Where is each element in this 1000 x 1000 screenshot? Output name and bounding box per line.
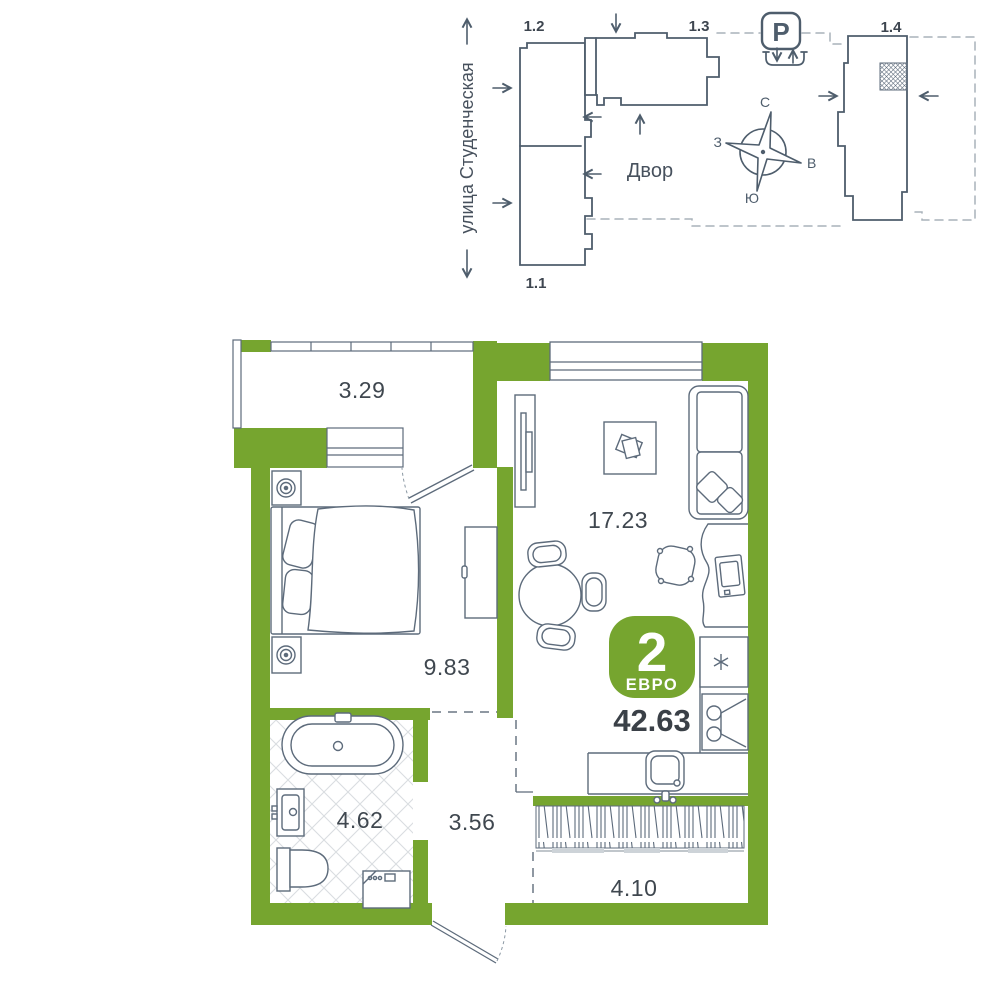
- dining-chair: [536, 623, 577, 651]
- nightstand: [272, 637, 301, 673]
- desk: [701, 524, 748, 627]
- window-sill-unit: [327, 428, 403, 467]
- apartment-type-badge: 2 ЕВРО: [609, 616, 695, 698]
- area-label-bathroom: 4.62: [337, 807, 384, 833]
- building-1-2-1-1-outline: [520, 43, 592, 265]
- balcony-glazing: [536, 806, 744, 848]
- building-label-1-4: 1.4: [881, 19, 903, 36]
- building-label-1-2: 1.2: [524, 18, 545, 35]
- living-window: [550, 342, 702, 380]
- dining-chair: [527, 540, 567, 568]
- loggia-wall: [233, 340, 241, 428]
- wardrobe: [462, 527, 497, 618]
- washing-machine: [363, 871, 410, 908]
- badge-type-label: ЕВРО: [626, 676, 679, 694]
- dining-chair: [582, 573, 606, 611]
- balcony-door: [402, 465, 474, 503]
- room-living-kitchen: [515, 386, 748, 803]
- building-1-3-outline: [585, 33, 719, 105]
- parking-ramp-icon: [763, 52, 807, 65]
- floorplan-page: улица Студенческая: [0, 0, 1000, 1000]
- street: улица Студенческая: [457, 20, 477, 276]
- stove: [702, 694, 748, 750]
- coffee-table: [604, 422, 656, 474]
- duvet: [308, 506, 419, 633]
- sofa: [689, 386, 748, 519]
- area-label-balcony: 4.10: [611, 875, 658, 901]
- area-label-loggia: 3.29: [339, 377, 386, 403]
- street-label: улица Студенческая: [457, 62, 477, 233]
- compass-east: В: [807, 155, 816, 171]
- room-balcony-bottom: [536, 806, 744, 853]
- apartment-location-marker: [880, 63, 907, 90]
- site-plan: улица Студенческая: [457, 13, 975, 292]
- building-label-1-3: 1.3: [689, 18, 710, 35]
- compass-south: Ю: [745, 190, 759, 206]
- pillow: [282, 569, 314, 616]
- compass-icon: С З В Ю: [714, 94, 817, 206]
- nightstand: [272, 471, 301, 505]
- compass-west: З: [714, 134, 722, 150]
- kitchen-sink: [646, 751, 684, 803]
- room-bedroom: [271, 471, 497, 673]
- courtyard-label: Двор: [627, 160, 673, 182]
- total-area-label: 42.63: [613, 703, 691, 738]
- dining-table: [519, 540, 606, 651]
- building-1-4: [838, 36, 907, 220]
- parking-symbol: P: [772, 17, 789, 47]
- badge-room-count: 2: [637, 621, 668, 683]
- entrance-door: [431, 921, 506, 963]
- parking-icon: P: [762, 13, 807, 65]
- fridge: [700, 637, 748, 687]
- balcony-sill-tabs: [552, 848, 728, 853]
- desk-stool: [653, 544, 697, 588]
- laptop-icon: [715, 555, 745, 597]
- bathtub: [282, 713, 403, 774]
- floorplan-canvas: улица Студенческая: [0, 0, 1000, 1000]
- area-label-bedroom: 9.83: [424, 654, 471, 680]
- area-label-living: 17.23: [588, 507, 648, 533]
- bed: [271, 506, 420, 634]
- floor-plan: 2 ЕВРО 42.63 3.29 17.23 9.83 4.62 3.56 4…: [233, 340, 768, 963]
- building-label-1-1: 1.1: [526, 275, 547, 292]
- loggia-glazing: [271, 342, 473, 351]
- compass-north: С: [760, 94, 770, 110]
- tv-unit: [515, 395, 535, 507]
- area-label-hallway: 3.56: [449, 809, 496, 835]
- bathroom-sink: [272, 789, 304, 836]
- buildings-left: [520, 33, 719, 265]
- door-openings: [432, 712, 533, 903]
